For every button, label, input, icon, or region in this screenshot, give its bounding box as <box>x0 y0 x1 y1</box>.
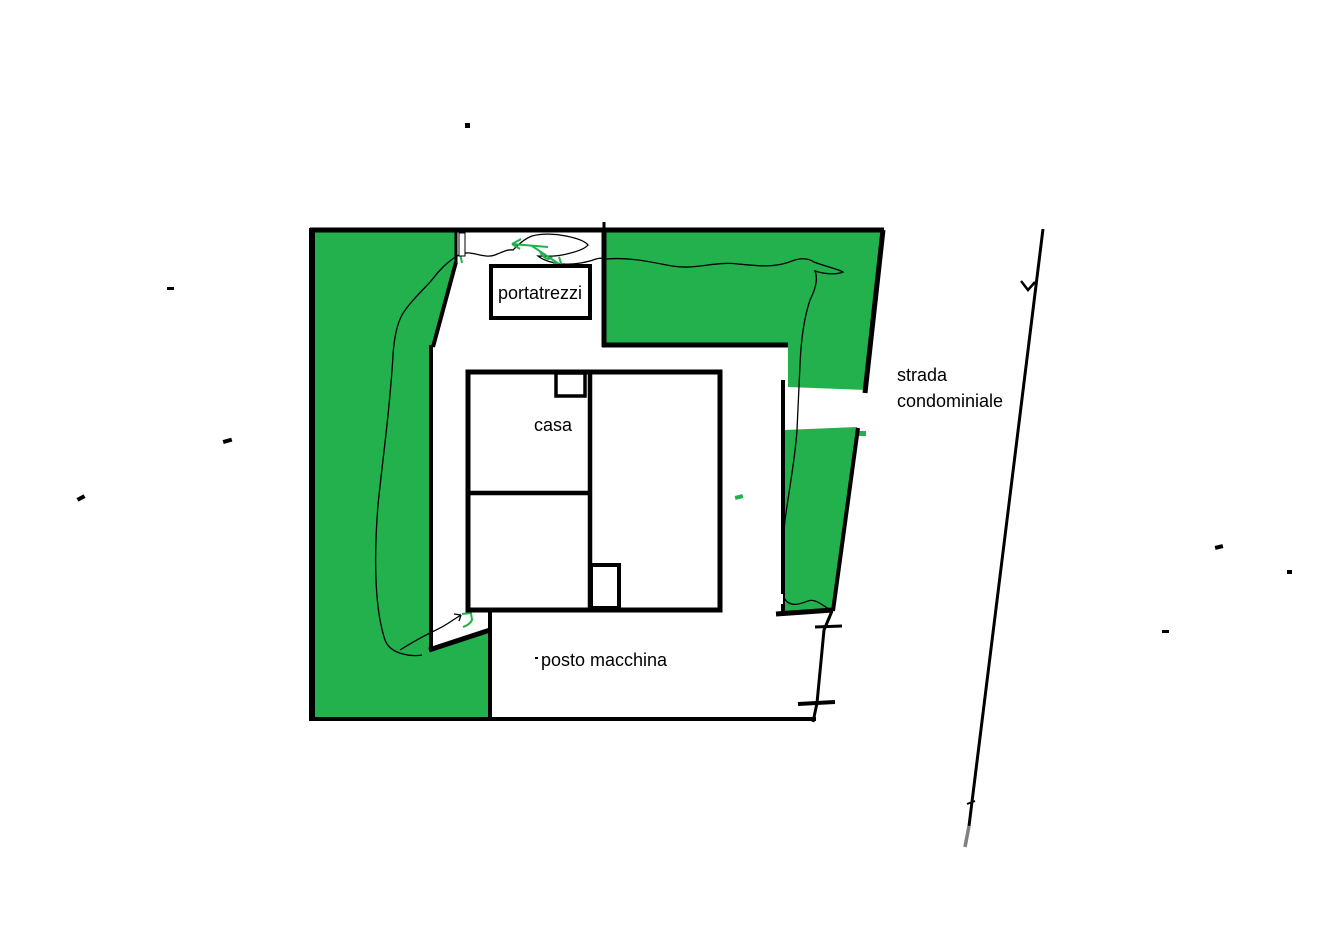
stray-mark-right-3 <box>1162 630 1169 633</box>
road-line <box>969 229 1043 826</box>
green-arrow-top-horizontal <box>512 239 548 249</box>
garden-area-left <box>315 232 490 717</box>
garden-area-top-right <box>606 231 883 390</box>
parking-label-dot <box>535 657 538 659</box>
house-top-annex <box>556 373 585 396</box>
stray-mark-left-2 <box>223 438 233 444</box>
road-line-gray-tail <box>965 826 969 847</box>
garden-green-dash-near-house <box>735 494 744 500</box>
stray-mark-left-1 <box>167 287 174 290</box>
site-plan-canvas: portatrezzi casa posto macchina strada c… <box>0 0 1330 929</box>
road-label-line-1: strada <box>897 365 948 385</box>
slot-marker <box>459 233 465 256</box>
survey-tick-lower <box>798 702 835 704</box>
stray-mark-right-2 <box>1287 570 1292 574</box>
stray-mark-right-1 <box>1215 544 1224 550</box>
road-small-tick <box>967 801 975 804</box>
white-patch-right-strip <box>780 594 783 604</box>
terrain-contour-top-loop <box>495 234 606 264</box>
road-check-mark <box>1021 281 1035 290</box>
site-plan-drawing: portatrezzi casa posto macchina strada c… <box>0 0 1330 929</box>
stray-mark-left-3 <box>77 494 86 501</box>
shed-label: portatrezzi <box>498 283 582 303</box>
road-label-line-2: condominiale <box>897 391 1003 411</box>
parking-label: posto macchina <box>541 650 668 670</box>
house-label: casa <box>534 415 573 435</box>
house-bottom-annex <box>591 565 619 608</box>
stray-mark-top <box>465 123 470 128</box>
survey-tick-upper <box>815 626 842 627</box>
